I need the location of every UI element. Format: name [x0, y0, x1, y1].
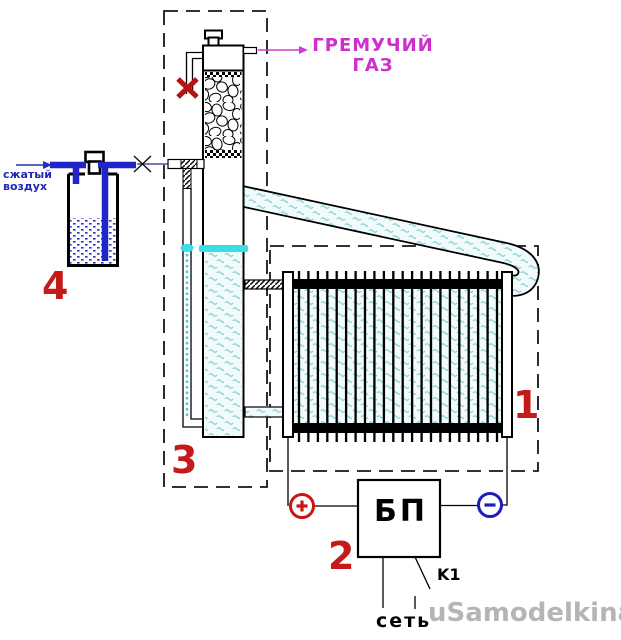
label-electrolyzer: 1	[513, 386, 539, 424]
mains-label: сеть	[376, 612, 431, 631]
bubbler-column	[178, 31, 257, 438]
upper-connection-pipe	[245, 280, 283, 289]
bottom-busbar	[292, 423, 502, 433]
gas-outlet-stub	[244, 48, 257, 54]
top-busbar	[292, 279, 502, 289]
schematic-canvas: сжатыйвоздух ГРЕМУЧИЙГАЗ 1 2 3 4 БП K1 с…	[0, 0, 621, 640]
left-end-plate	[283, 272, 293, 437]
oxyhydrogen-gas-label: ГРЕМУЧИЙГАЗ	[310, 36, 436, 76]
schematic-drawing	[0, 0, 621, 640]
gas-outlet-arrow-icon	[258, 46, 308, 54]
tank-liquid	[70, 218, 116, 264]
water-feed-tube	[181, 188, 204, 427]
right-end-plate	[502, 272, 512, 437]
psu-box-label: БП	[374, 497, 428, 527]
water-level-line	[199, 245, 248, 252]
label-water-tank: 4	[42, 267, 68, 305]
column-header	[203, 46, 244, 71]
air-inlet-label: сжатыйвоздух	[3, 169, 52, 193]
label-power-supply: 2	[328, 537, 354, 575]
electrolyte-fill	[292, 289, 502, 423]
minus-terminal-icon	[479, 494, 502, 517]
lower-water-pipe	[245, 407, 283, 417]
plus-terminal-icon	[291, 495, 314, 518]
stone-filter	[205, 77, 242, 150]
inlet-flange	[168, 160, 204, 189]
column-water	[205, 252, 242, 436]
watermark: uSamodelkina.ru	[428, 600, 621, 626]
upper-grid-band	[205, 72, 242, 77]
tube-level-dot	[181, 244, 194, 252]
relay-label: K1	[437, 567, 461, 583]
lower-grid-band	[205, 150, 242, 158]
inlet-line-and-valve	[134, 156, 168, 172]
closed-valve-x-icon	[178, 79, 197, 97]
label-bubbler-column: 3	[171, 441, 197, 479]
electrolyzer	[245, 271, 512, 442]
